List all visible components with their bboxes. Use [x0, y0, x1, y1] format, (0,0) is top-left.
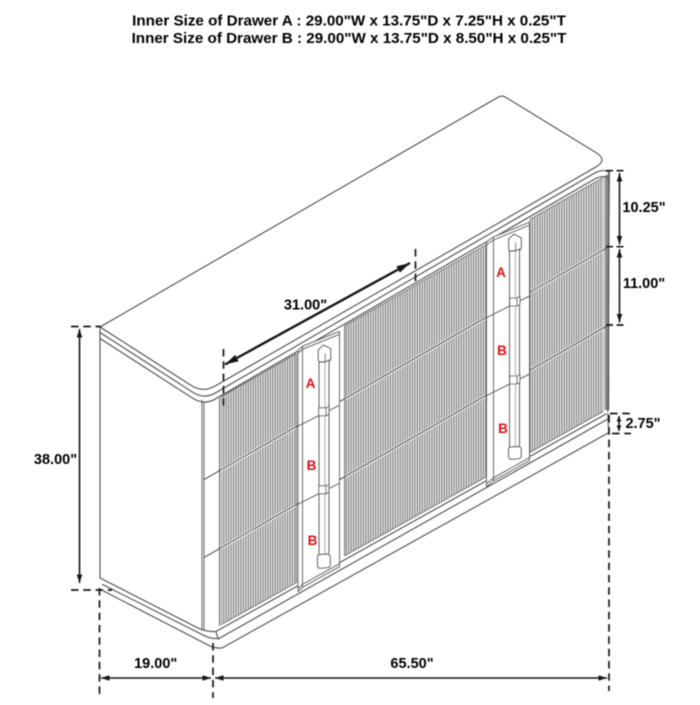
svg-text:10.25": 10.25" [622, 200, 665, 216]
svg-text:B: B [498, 421, 508, 436]
svg-text:2.75": 2.75" [625, 416, 660, 432]
svg-text:65.50": 65.50" [390, 656, 433, 672]
svg-text:19.00": 19.00" [134, 656, 177, 672]
svg-text:Inner Size of Drawer A : 29.00: Inner Size of Drawer A : 29.00"W x 13.75… [132, 13, 566, 30]
svg-text:B: B [497, 343, 507, 358]
svg-text:38.00": 38.00" [34, 452, 77, 468]
svg-text:Inner Size of Drawer B : 29.00: Inner Size of Drawer B : 29.00"W x 13.75… [132, 30, 568, 47]
svg-text:11.00": 11.00" [623, 276, 665, 292]
svg-text:31.00": 31.00" [284, 298, 327, 314]
svg-text:A: A [306, 376, 316, 391]
svg-text:A: A [496, 265, 506, 280]
svg-text:B: B [308, 533, 318, 548]
svg-text:B: B [307, 458, 317, 473]
